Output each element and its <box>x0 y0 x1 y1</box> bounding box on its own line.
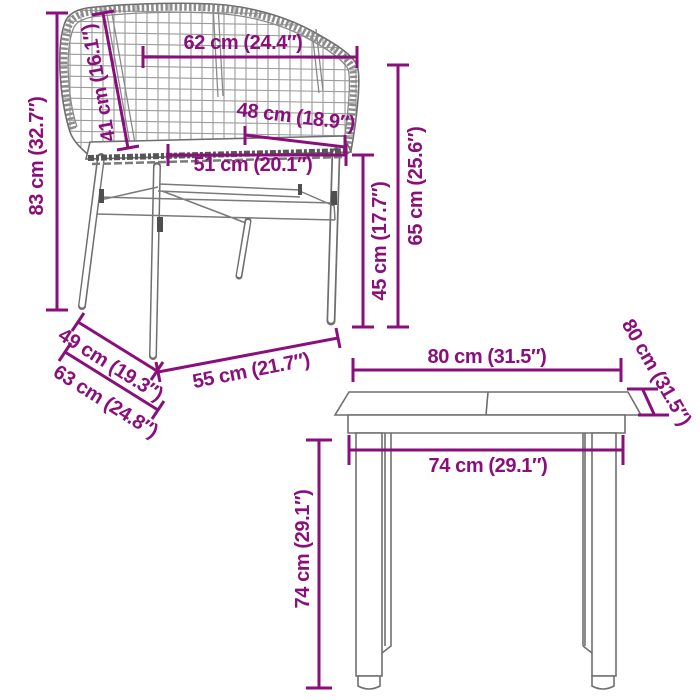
table-right-leg-front <box>592 433 616 676</box>
table-left-leg-front <box>356 433 382 676</box>
table-right-foot <box>592 676 614 689</box>
chair-front-left-leg-face <box>82 158 101 305</box>
dim-label-chair-seat-width: 51 cm (20.1″) <box>194 154 313 176</box>
dim-chair-seat-height: 45 cm (17.7″) <box>352 155 391 327</box>
leg-brackets <box>99 184 337 232</box>
table-left-leg-side <box>382 433 391 653</box>
table-left-leg <box>356 433 391 689</box>
dim-chair-armrest-height: 65 cm (25.6″) <box>387 65 427 327</box>
table-left-foot <box>358 676 380 689</box>
diagram-canvas: 83 cm (32.7″) 41 cm (16.1″) 62 cm (24.4″… <box>0 0 700 700</box>
dim-label-table-top-width: 80 cm (31.5″) <box>428 346 547 368</box>
dim-label-table-height: 74 cm (29.1″) <box>292 490 314 609</box>
bracket-icon <box>99 189 104 203</box>
product-dimension-diagram: 83 cm (32.7″) 41 cm (16.1″) 62 cm (24.4″… <box>0 0 700 700</box>
dim-table-height: 74 cm (29.1″) <box>292 440 332 688</box>
dim-label-chair-total-height: 83 cm (32.7″) <box>26 97 48 216</box>
table-right-leg-side <box>583 433 592 653</box>
dim-label-chair-armrest-height: 65 cm (25.6″) <box>405 127 427 246</box>
dim-label-table-leg-span: 74 cm (29.1″) <box>429 455 548 477</box>
table-apron <box>348 415 625 433</box>
bracket-icon <box>298 184 302 195</box>
table-right-leg <box>583 433 616 689</box>
dim-chair-base-width: 55 cm (21.7″) <box>156 328 340 393</box>
dim-label-chair-backrest-width: 62 cm (24.4″) <box>184 32 303 54</box>
bracket-icon <box>157 217 163 232</box>
table-illustration <box>335 392 641 689</box>
dim-table-top-width: 80 cm (31.5″) <box>353 346 621 382</box>
bracket-icon <box>331 191 337 205</box>
dim-table-leg-span: 74 cm (29.1″) <box>349 435 623 477</box>
dim-label-chair-seat-height: 45 cm (17.7″) <box>369 182 391 301</box>
